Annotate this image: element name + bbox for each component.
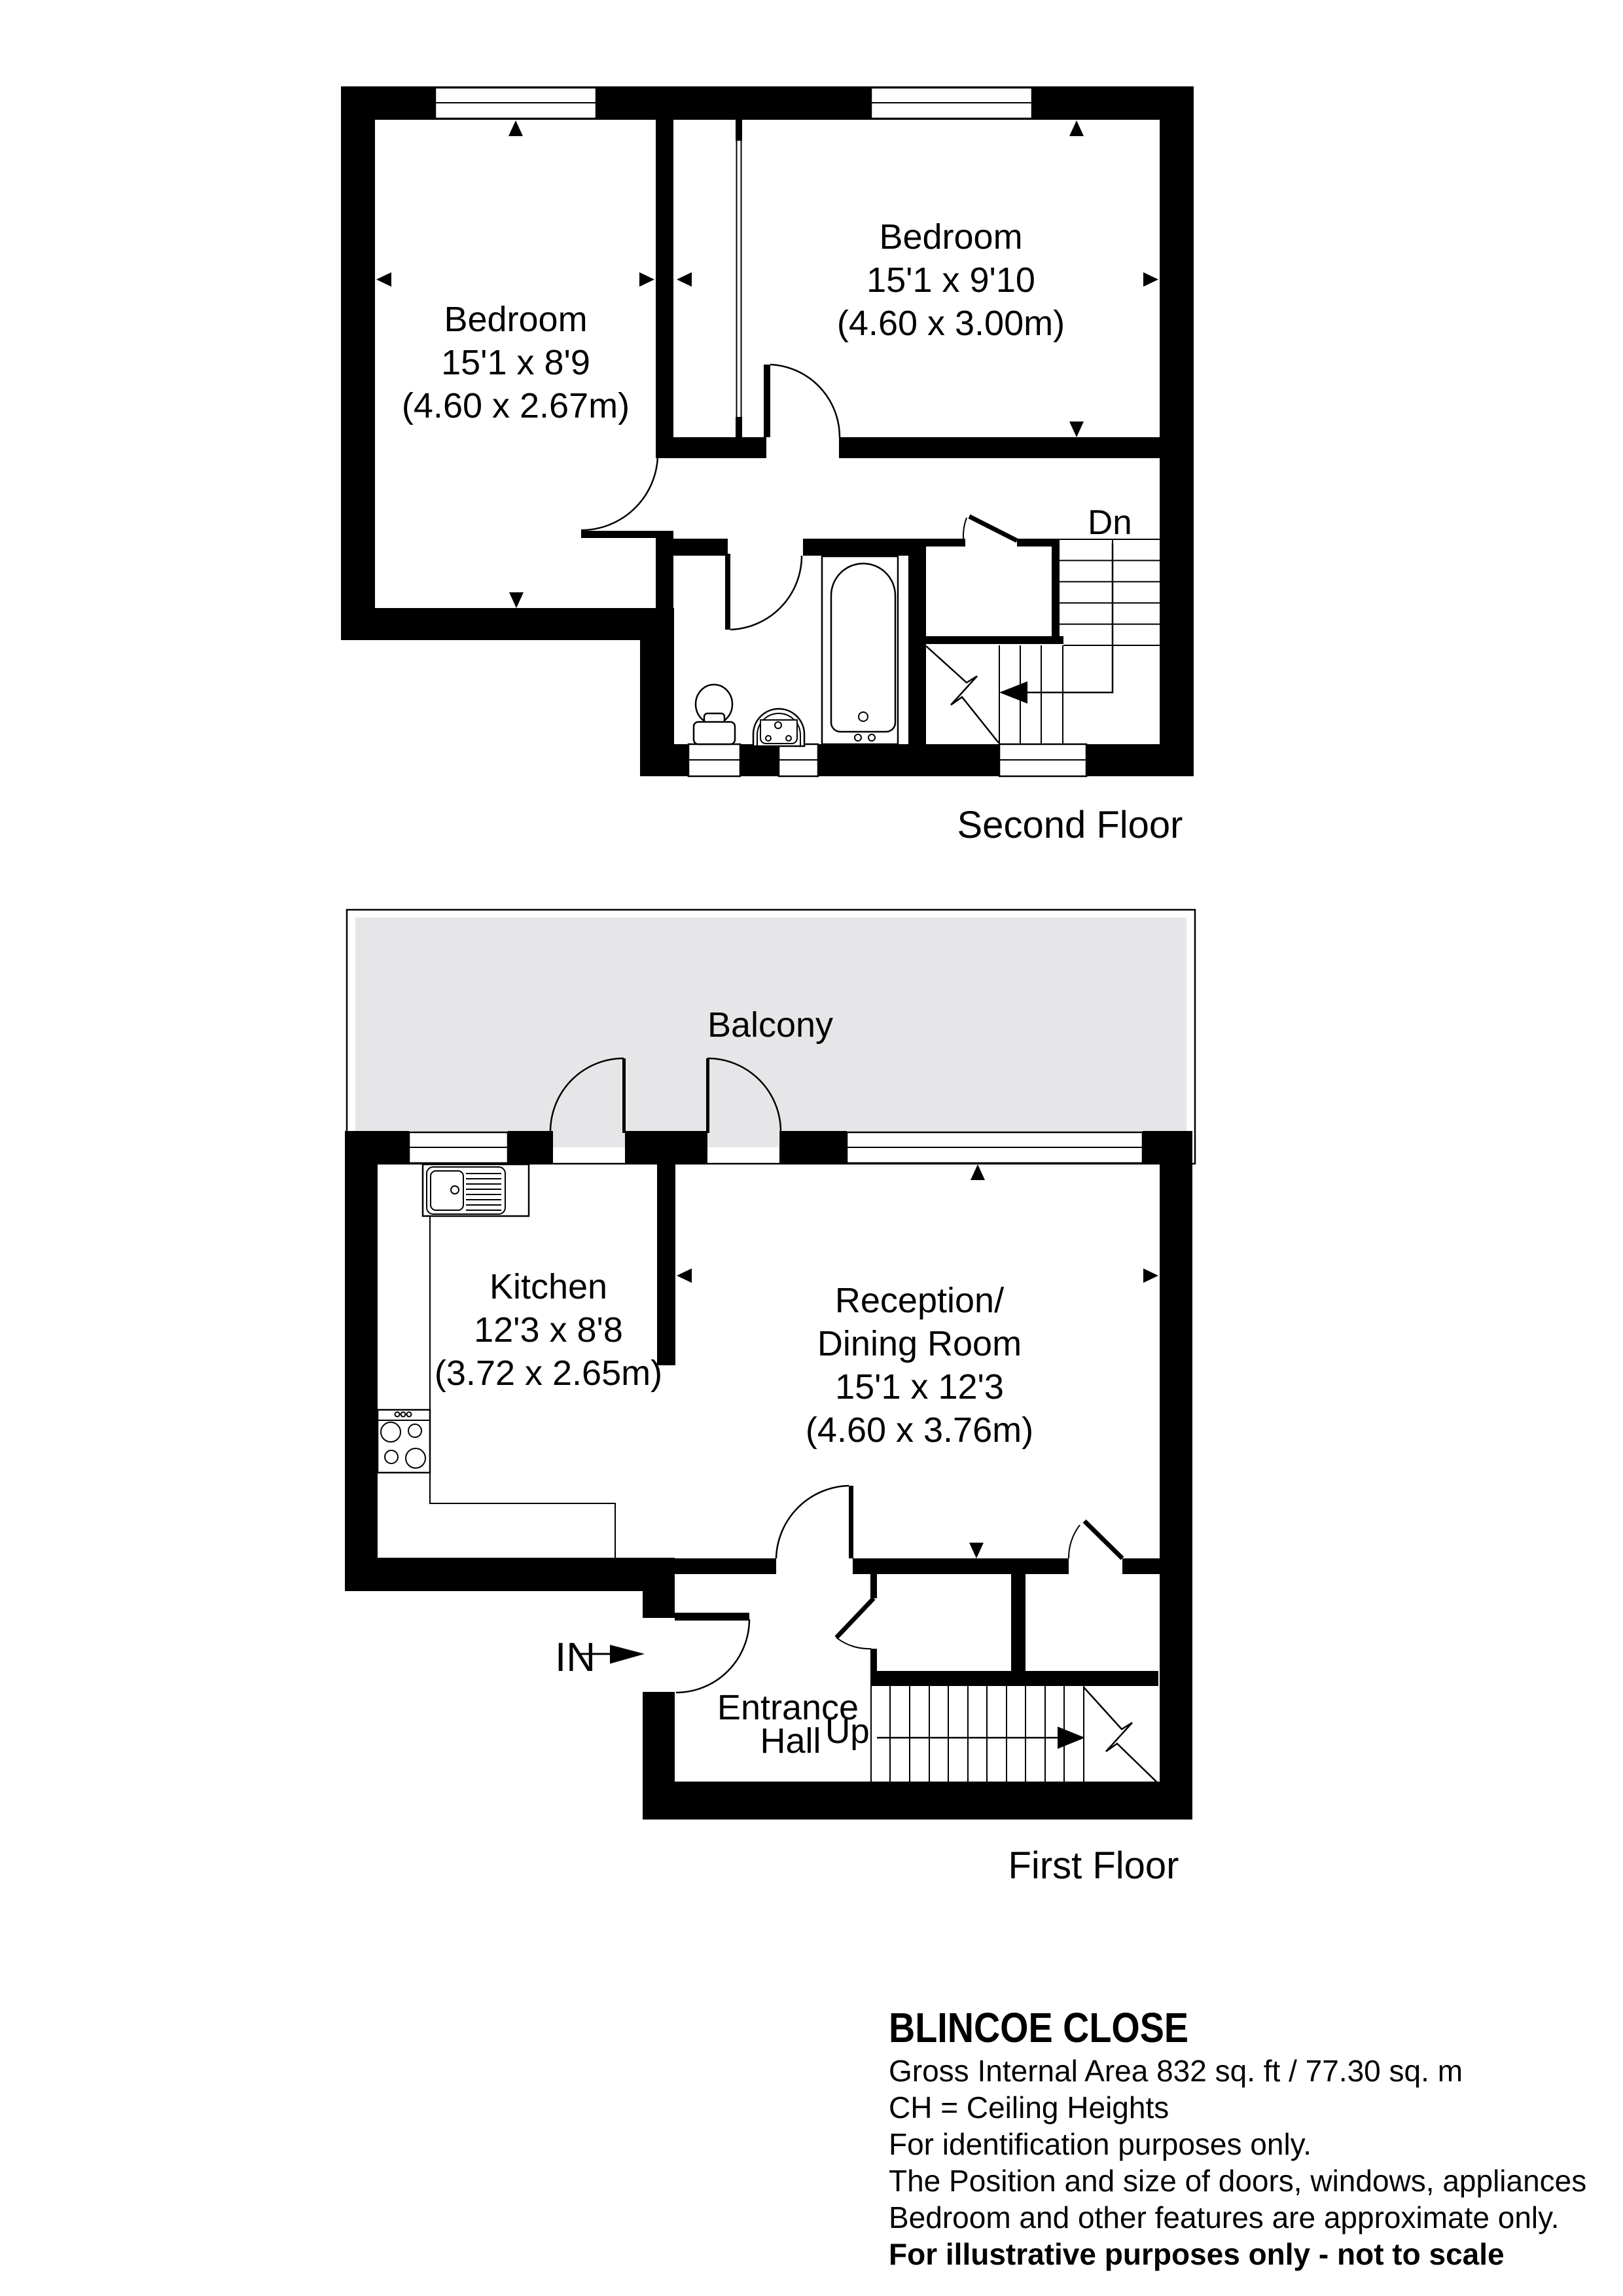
- svg-text:(3.72 x 2.65m): (3.72 x 2.65m): [435, 1354, 662, 1393]
- svg-text:Reception/: Reception/: [835, 1281, 1004, 1320]
- svg-text:Hall: Hall: [760, 1721, 821, 1761]
- svg-text:For illustrative purposes only: For illustrative purposes only - not to …: [889, 2237, 1505, 2271]
- svg-text:Kitchen: Kitchen: [490, 1267, 607, 1306]
- svg-text:IN: IN: [555, 1635, 596, 1680]
- svg-text:CH = Ceiling Heights: CH = Ceiling Heights: [889, 2090, 1169, 2125]
- svg-text:Bedroom: Bedroom: [444, 300, 587, 339]
- svg-text:The Position and size of doors: The Position and size of doors, windows,…: [889, 2164, 1586, 2198]
- svg-text:Bedroom and other features are: Bedroom and other features are approxima…: [889, 2200, 1560, 2234]
- svg-text:Bedroom: Bedroom: [879, 217, 1022, 257]
- svg-text:First Floor: First Floor: [1008, 1844, 1179, 1887]
- svg-text:(4.60 x 2.67m): (4.60 x 2.67m): [402, 386, 630, 425]
- svg-text:Dn: Dn: [1088, 503, 1132, 542]
- svg-text:15'1 x 12'3: 15'1 x 12'3: [835, 1367, 1004, 1407]
- svg-text:For identification purposes on: For identification purposes only.: [889, 2127, 1311, 2161]
- svg-text:Balcony: Balcony: [707, 1005, 833, 1045]
- svg-text:BLINCOE CLOSE: BLINCOE CLOSE: [889, 2004, 1188, 2051]
- svg-text:(4.60 x 3.76m): (4.60 x 3.76m): [806, 1410, 1033, 1450]
- svg-text:Second Floor: Second Floor: [957, 804, 1183, 846]
- svg-text:12'3 x 8'8: 12'3 x 8'8: [474, 1310, 623, 1350]
- svg-text:15'1 x 9'10: 15'1 x 9'10: [866, 260, 1035, 300]
- svg-text:Dining Room: Dining Room: [817, 1324, 1022, 1363]
- svg-text:Gross Internal Area 832 sq. ft: Gross Internal Area 832 sq. ft / 77.30 s…: [889, 2054, 1463, 2088]
- svg-text:(4.60 x 3.00m): (4.60 x 3.00m): [837, 304, 1065, 343]
- svg-text:15'1 x 8'9: 15'1 x 8'9: [441, 343, 590, 382]
